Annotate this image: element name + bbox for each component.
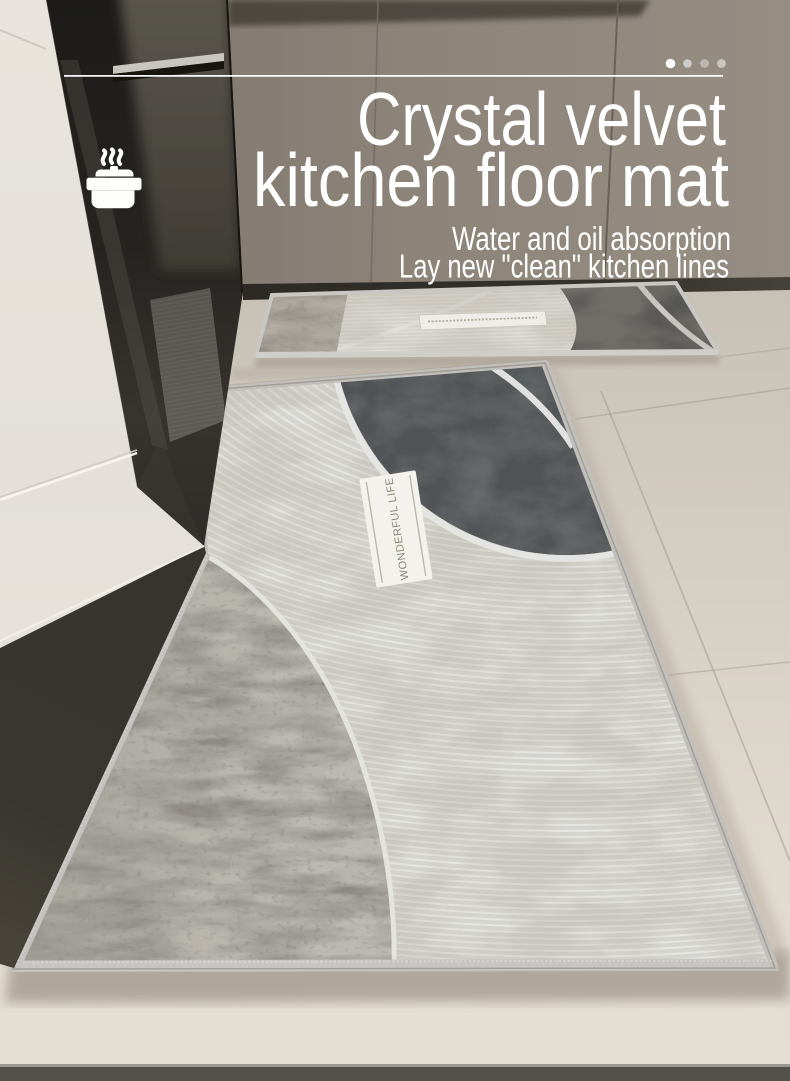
svg-text:kitchen floor mat: kitchen floor mat xyxy=(253,138,729,222)
svg-text:Lay new "clean" kitchen lines: Lay new "clean" kitchen lines xyxy=(399,248,729,285)
